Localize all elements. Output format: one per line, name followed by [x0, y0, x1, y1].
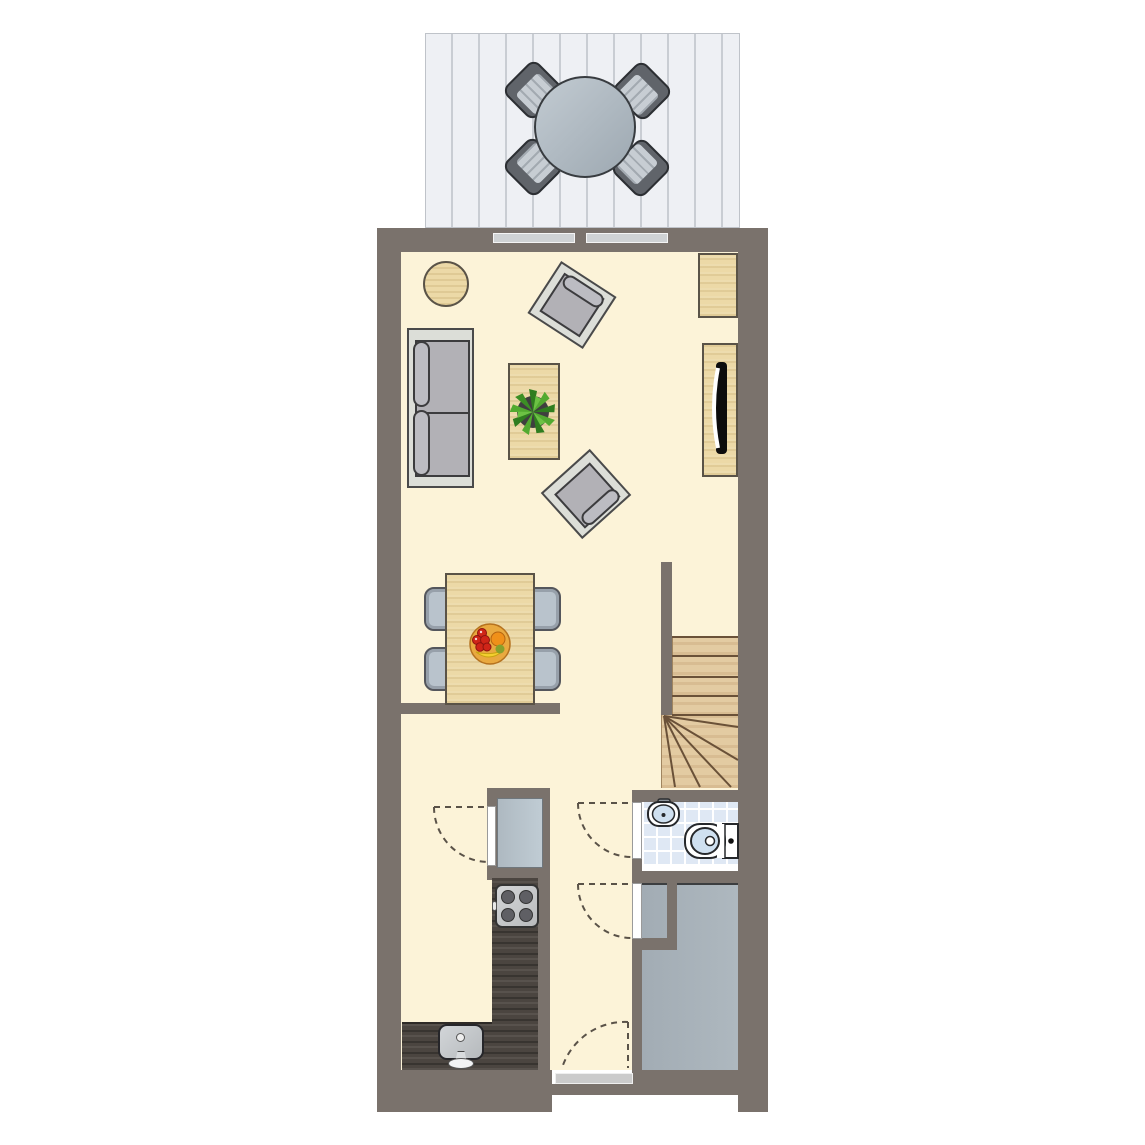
- sofa-back-cushion: [413, 341, 430, 407]
- entry-threshold: [555, 1073, 633, 1084]
- kitchen-appliance: [497, 798, 543, 868]
- outer-wall-right: [738, 228, 768, 1112]
- stove-burner: [501, 890, 515, 904]
- storage-door-leaf: [632, 883, 642, 939]
- outer-wall-bottom-left: [401, 1070, 552, 1112]
- wall-bathroom-bottom: [632, 871, 738, 883]
- terrace-window: [493, 233, 575, 243]
- wall-storage-stub-horizontal: [642, 938, 677, 950]
- storage-room-floor: [642, 883, 738, 1070]
- outer-wall-bottom-under-door: [552, 1084, 632, 1095]
- washbasin-icon: [646, 798, 684, 828]
- wall-kitchen-hall: [538, 880, 550, 1070]
- stairs-winder: [661, 715, 738, 788]
- stove-icon: [495, 884, 539, 928]
- fruit-bowl-icon: [468, 622, 512, 666]
- stove-burner: [519, 908, 533, 922]
- kitchen-sink-drain: [456, 1033, 465, 1042]
- sofa-back-cushion: [413, 410, 430, 476]
- stove-burner: [501, 908, 515, 922]
- tv-icon: [708, 358, 732, 458]
- wall-storage-stub-vertical: [667, 883, 677, 945]
- round-side-table: [423, 261, 469, 307]
- toilet-icon: [683, 822, 739, 860]
- stove-burner: [519, 890, 533, 904]
- stairs-straight-flight: [672, 636, 738, 715]
- outer-wall-left: [377, 228, 401, 1112]
- terrace-round-table: [534, 76, 636, 178]
- stove-knob: [492, 901, 497, 911]
- sofa: [407, 328, 474, 488]
- plant-icon: [509, 388, 557, 436]
- bathroom-floor-edge: [642, 866, 738, 871]
- corner-cabinet: [698, 253, 738, 318]
- terrace-window: [586, 233, 668, 243]
- floor-plan: [0, 0, 1145, 1145]
- wall-stairs: [661, 562, 672, 715]
- outer-wall-bottom-right: [632, 1070, 738, 1095]
- bathroom-door-leaf: [632, 802, 642, 859]
- kitchen-faucet-base: [448, 1058, 474, 1069]
- kitchen-closet-door-leaf: [487, 806, 496, 866]
